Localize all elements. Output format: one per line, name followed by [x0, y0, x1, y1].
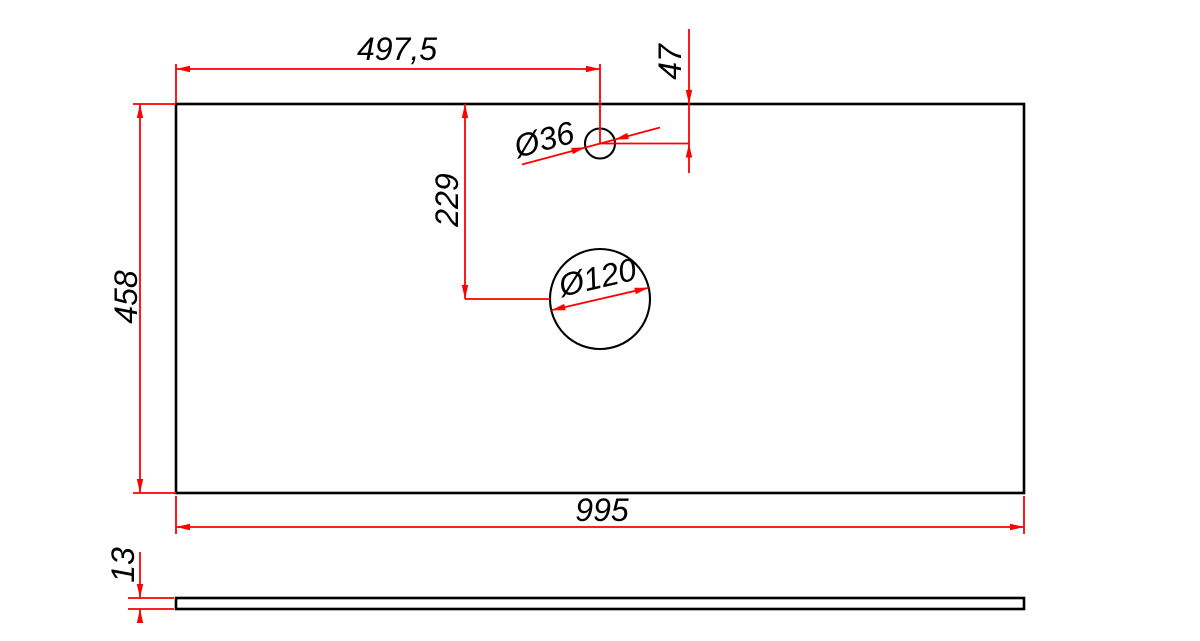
arrowhead: [137, 479, 143, 493]
side-view: [176, 598, 1024, 609]
arrowhead: [137, 104, 143, 118]
arrowhead: [551, 304, 565, 310]
dimension-large-hole-diameter: Ø120: [551, 251, 648, 310]
drawing-canvas: 497,5 47 Ø36 229: [0, 0, 1200, 641]
dimension-panel-height: 458: [108, 104, 176, 493]
arrowhead: [634, 288, 648, 294]
dimension-label-large-hole-offset-top: 229: [429, 173, 465, 228]
panel-edge-outline: [176, 598, 1024, 609]
dimension-label-offset-left: 497,5: [357, 31, 437, 67]
dimension-panel-thickness: 13: [105, 547, 174, 623]
arrowhead: [176, 66, 190, 72]
arrowhead: [686, 144, 692, 158]
arrowhead: [137, 609, 143, 623]
dimension-label-small-hole-diameter: Ø36: [509, 114, 578, 165]
arrowhead: [615, 133, 629, 140]
arrowhead: [137, 584, 143, 598]
dimension-label-large-hole-diameter: Ø120: [554, 251, 640, 304]
arrowhead: [462, 104, 468, 118]
dimension-panel-width: 995: [176, 492, 1024, 534]
dimension-label-offset-top: 47: [652, 43, 688, 80]
arrowhead: [586, 66, 600, 72]
arrowhead: [1010, 524, 1024, 530]
arrowhead: [462, 285, 468, 299]
dimension-label-panel-height: 458: [108, 270, 144, 324]
dimension-label-panel-thickness: 13: [105, 547, 141, 583]
arrowhead: [686, 90, 692, 104]
technical-drawing: 497,5 47 Ø36 229: [0, 0, 1200, 641]
arrowhead: [176, 524, 190, 530]
dimension-label-panel-width: 995: [575, 492, 629, 528]
